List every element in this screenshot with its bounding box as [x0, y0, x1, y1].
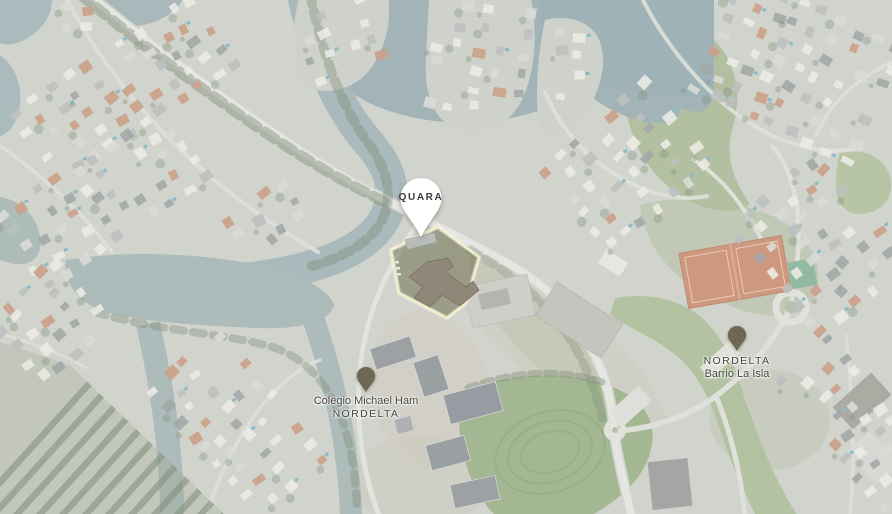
barrio-caption-line1: NORDELTA: [657, 355, 817, 368]
colegio-michael-ham-pin[interactable]: [356, 366, 376, 398]
map-pin-icon: [727, 325, 747, 352]
balloon-pin-icon: [398, 177, 444, 239]
quara-marker[interactable]: QUARA: [398, 177, 444, 239]
map-pin-icon: [356, 366, 376, 393]
barrio-caption: NORDELTA Barrio La Isla: [657, 355, 817, 381]
satellite-map: [0, 0, 892, 514]
colegio-caption: Colegio Michael Ham NORDELTA: [286, 395, 446, 421]
barrio-caption-line2: Barrio La Isla: [657, 368, 817, 381]
quara-label: QUARA: [398, 192, 444, 203]
map-canvas[interactable]: QUARA Colegio Michael Ham NORDELTA NORDE…: [0, 0, 892, 514]
colegio-caption-line2: NORDELTA: [286, 408, 446, 421]
colegio-caption-line1: Colegio Michael Ham: [286, 395, 446, 408]
barrio-la-isla-pin[interactable]: [727, 325, 747, 357]
